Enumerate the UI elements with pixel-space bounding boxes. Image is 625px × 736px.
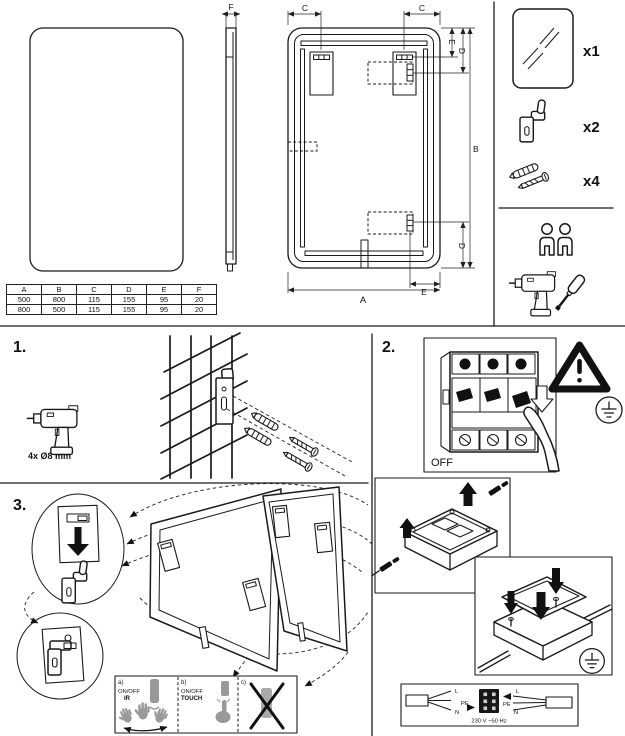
earth-icon xyxy=(596,397,622,423)
option-b-key: b) xyxy=(181,680,186,686)
table-cell: 800 xyxy=(42,295,77,305)
dim-label-e-lower: E xyxy=(421,287,427,297)
screwdriver-icon xyxy=(553,274,586,313)
table-cell: 800 xyxy=(7,305,42,315)
back-mounting-plate-right xyxy=(393,52,416,95)
dim-label-e-upper: E xyxy=(447,39,457,45)
col-header: F xyxy=(182,285,217,295)
side-cable-entry xyxy=(288,142,317,151)
cable-entry-tab xyxy=(361,240,368,268)
junction-zone-lower xyxy=(368,212,413,234)
option-c-key: c) xyxy=(241,680,246,686)
option-a-type: IR xyxy=(124,696,131,702)
wall-bracket xyxy=(216,368,234,424)
wiring-diagram: L PE N L PE N 230 V ~50 Hz xyxy=(401,684,578,726)
option-b-mode: ON/OFF xyxy=(181,689,203,695)
table-row: 500 800 115 155 95 20 xyxy=(7,295,217,305)
dim-label-c-right: C xyxy=(419,3,425,13)
table-cell: 500 xyxy=(42,305,77,315)
dim-label-a: A xyxy=(360,295,367,306)
bracket-part-icon xyxy=(520,100,545,142)
hanging-detail-circle xyxy=(32,494,124,604)
step-3-panel: 3. xyxy=(13,484,372,733)
dim-label-d-lower: D xyxy=(457,243,467,249)
bracket-qty-label: x2 xyxy=(583,119,600,136)
col-header: C xyxy=(77,285,112,295)
back-mounting-plate-left xyxy=(310,52,333,95)
col-header: A xyxy=(7,285,42,295)
bracket-icon xyxy=(62,561,87,603)
mirror-side-view: F xyxy=(222,2,240,271)
option-a-key: a) xyxy=(118,680,123,686)
manual-drawing: F xyxy=(0,0,625,736)
instruction-sheet: F xyxy=(0,0,625,736)
col-header: D xyxy=(112,285,147,295)
step-2-number: 2. xyxy=(382,339,395,356)
cable-left xyxy=(406,695,428,706)
table-cell: 95 xyxy=(147,295,182,305)
col-header: E xyxy=(147,285,182,295)
dim-label-d-upper: D xyxy=(457,48,467,54)
wire-label-n-left: N xyxy=(455,710,459,716)
engaged-detail-circle xyxy=(17,613,103,699)
drill-size-label: 4x Ø8 mm xyxy=(28,451,71,461)
table-cell: 20 xyxy=(182,295,217,305)
table-row: 800 500 115 155 95 20 xyxy=(7,305,217,315)
mirror-front-view xyxy=(30,28,183,271)
option-a-mode: ON/OFF xyxy=(118,689,140,695)
option-b-type: TOUCH xyxy=(181,696,202,702)
table-cell: 155 xyxy=(112,305,147,315)
breaker-state-label: OFF xyxy=(431,457,453,469)
power-rating-label: 230 V ~50 Hz xyxy=(471,719,506,725)
screw-icon xyxy=(281,449,313,473)
wire-label-n-right: N xyxy=(514,710,518,716)
parts-panel: x1 x2 x4 xyxy=(499,9,613,316)
table-cell: 95 xyxy=(147,305,182,315)
insert-guide-line xyxy=(227,409,345,476)
wall-hatch xyxy=(161,333,247,479)
table-header-row: A B C D E F xyxy=(7,285,217,295)
step-1-number: 1. xyxy=(13,339,26,356)
drill-icon xyxy=(510,272,556,316)
drill-icon xyxy=(27,406,77,455)
mirror-perspective-front xyxy=(150,489,281,671)
step-1-panel: 1. 4x Ø8 mm xyxy=(13,333,352,479)
table-cell: 115 xyxy=(77,305,112,315)
fastener-part-icon xyxy=(508,160,549,193)
mirror-qty-label: x1 xyxy=(583,43,600,60)
sensor-options-box: a) ON/OFF IR b) ON/OFF TOUCH xyxy=(115,676,297,733)
person-icon xyxy=(558,224,572,255)
wall-plug-icon xyxy=(250,410,279,431)
dim-label-f: F xyxy=(228,2,233,12)
screw-icon xyxy=(287,434,319,458)
touch-sensor-icon xyxy=(221,681,229,696)
wall-plug-icon xyxy=(243,425,272,446)
table-cell: 20 xyxy=(182,305,217,315)
dimension-table: A B C D E F 500 800 115 155 95 20 800 50… xyxy=(6,284,217,315)
ir-sensor-icon xyxy=(150,679,159,703)
terminal-connector xyxy=(479,689,499,713)
col-header: B xyxy=(42,285,77,295)
terminal-block-lower xyxy=(407,215,413,231)
table-cell: 155 xyxy=(112,295,147,305)
dim-label-b: B xyxy=(473,144,479,154)
table-cell: 500 xyxy=(7,295,42,305)
fastener-qty-label: x4 xyxy=(583,173,600,190)
dimension-lines: C C E D B D E A xyxy=(288,3,479,306)
step-2-panel: 2. xyxy=(371,338,622,726)
breaker-off-figure: OFF xyxy=(424,338,559,472)
dim-label-c-left: C xyxy=(302,3,308,13)
step-3-number: 3. xyxy=(13,497,26,514)
person-icon xyxy=(540,224,554,255)
warning-triangle-icon xyxy=(552,345,607,389)
junction-box-close-figure xyxy=(475,557,612,675)
mirror-part-icon xyxy=(513,9,573,88)
table-cell: 115 xyxy=(77,295,112,305)
wire-label-pe-right: PE xyxy=(503,702,511,708)
mirror-back-view: C C E D B D E A xyxy=(288,3,479,306)
cable-right xyxy=(546,697,572,708)
